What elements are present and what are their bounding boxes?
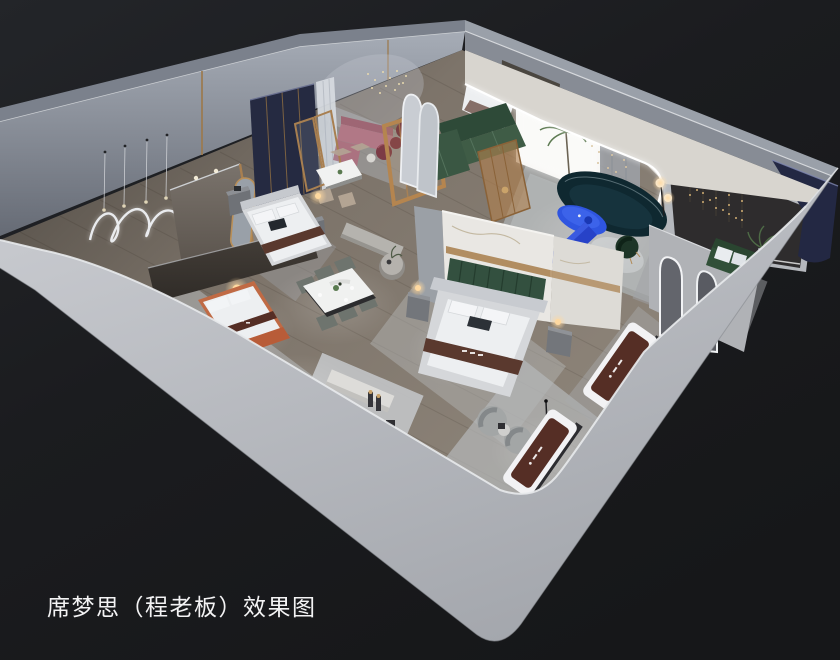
caption: 席梦思（程老板）效果图 (47, 588, 317, 622)
render-canvas: 席梦思（程老板）效果图 (0, 0, 840, 660)
showroom-render (0, 0, 840, 660)
arch-panels (400, 94, 440, 197)
side-table (367, 154, 376, 163)
